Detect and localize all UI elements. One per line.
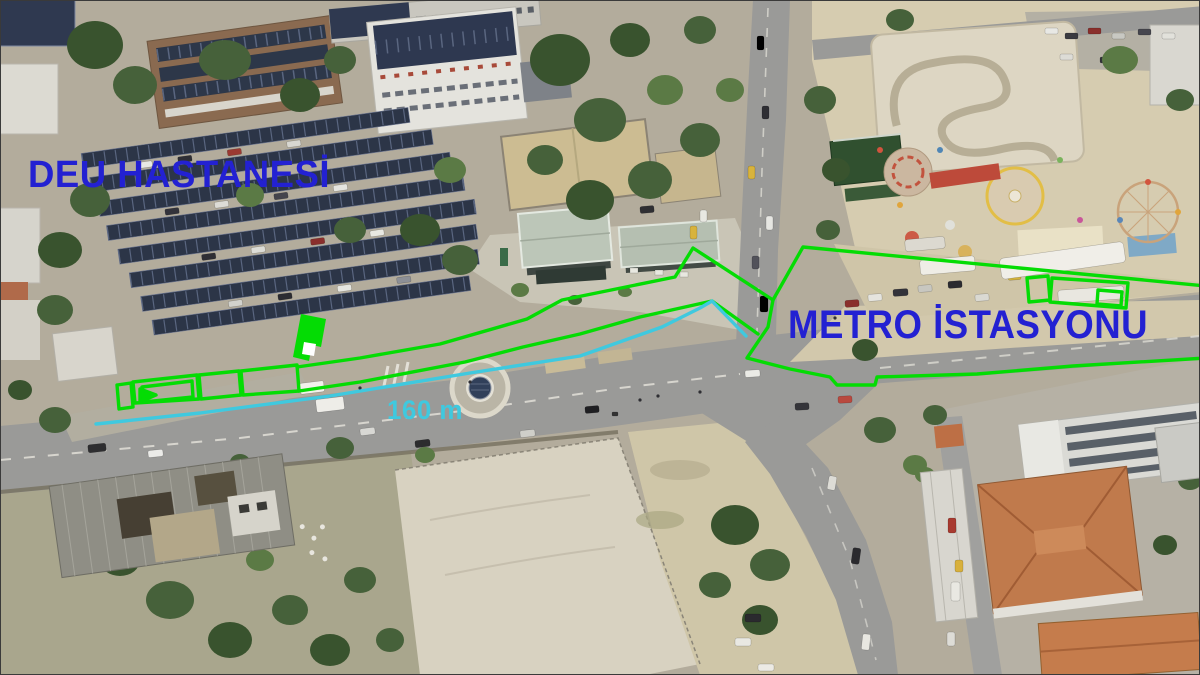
distance-label: 160 m: [387, 395, 463, 425]
metro-label: METRO İSTASYONU: [788, 303, 1148, 347]
hospital-label: DEU HASTANESİ: [28, 154, 330, 196]
blue-tarp: [1127, 233, 1177, 257]
orange-roof-building: [978, 466, 1143, 618]
annotated-aerial-photo: DEU HASTANESİ METRO İSTASYONU 160 m: [0, 0, 1200, 675]
aerial-scene: DEU HASTANESİ METRO İSTASYONU 160 m: [0, 0, 1200, 675]
